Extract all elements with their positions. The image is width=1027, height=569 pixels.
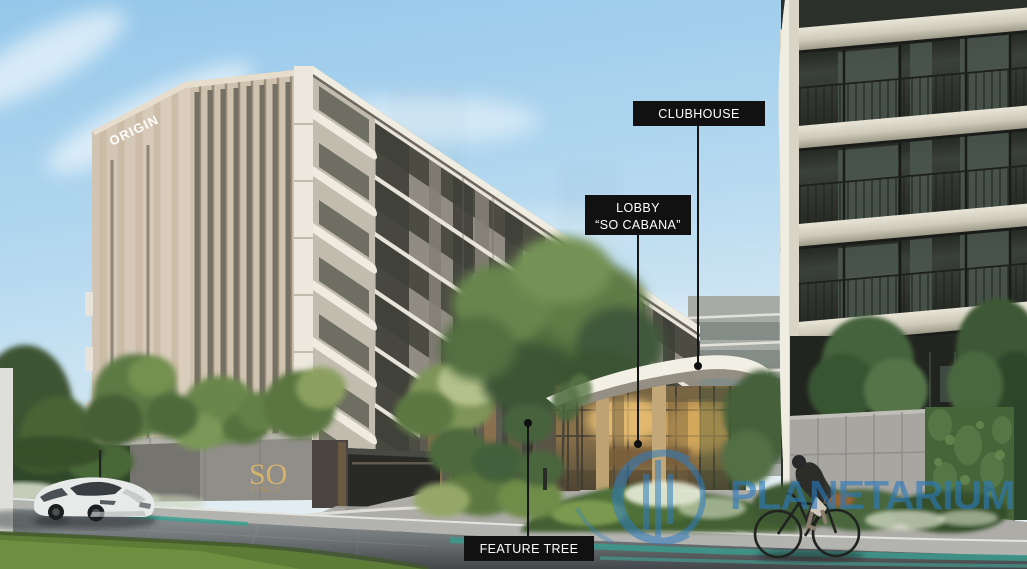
svg-text:“SO CABANA”: “SO CABANA” — [595, 218, 681, 232]
svg-text:FEATURE TREE: FEATURE TREE — [480, 542, 579, 556]
svg-text:CLUBHOUSE: CLUBHOUSE — [658, 107, 739, 121]
svg-text:ATMOZ: ATMOZ — [250, 485, 281, 494]
svg-text:PLANETARIUM: PLANETARIUM — [730, 472, 1014, 518]
svg-text:LOBBY: LOBBY — [616, 201, 660, 215]
